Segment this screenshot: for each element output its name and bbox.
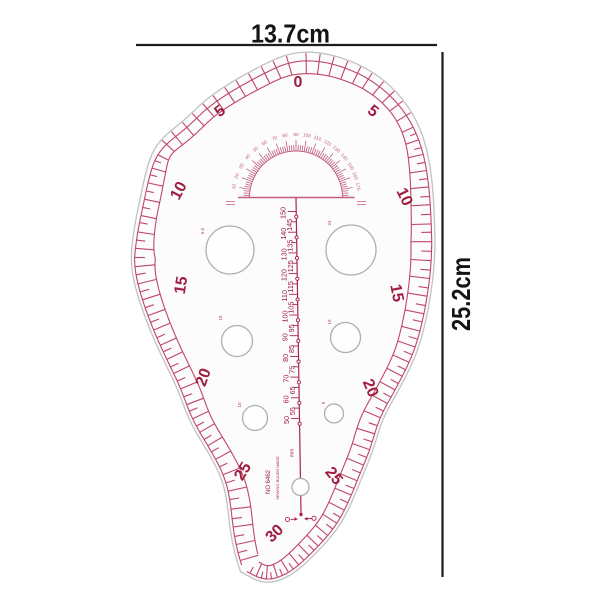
svg-text:90: 90 <box>281 333 290 341</box>
svg-text:140: 140 <box>279 228 288 240</box>
svg-text:16: 16 <box>218 315 223 321</box>
svg-text:65: 65 <box>288 386 297 394</box>
svg-text:130: 130 <box>279 248 288 260</box>
svg-text:75: 75 <box>288 366 297 374</box>
svg-text:10: 10 <box>237 402 242 408</box>
svg-text:100: 100 <box>280 311 289 323</box>
svg-text:SEWING RULER MADE: SEWING RULER MADE <box>275 456 280 500</box>
svg-text:50: 50 <box>282 416 291 424</box>
svg-text:13.7cm: 13.7cm <box>251 19 330 49</box>
svg-text:85: 85 <box>287 345 296 353</box>
svg-text:120: 120 <box>280 269 289 281</box>
svg-text:25.2cm: 25.2cm <box>446 257 476 331</box>
svg-text:60: 60 <box>282 395 291 403</box>
svg-text:90: 90 <box>293 132 299 138</box>
svg-text:80: 80 <box>281 354 290 362</box>
svg-text:95: 95 <box>287 324 296 332</box>
svg-text:0: 0 <box>294 74 303 91</box>
svg-text:55: 55 <box>288 407 297 415</box>
svg-text:5.5: 5.5 <box>200 227 205 234</box>
svg-text:70: 70 <box>281 375 290 383</box>
svg-text:mm: mm <box>290 449 296 457</box>
svg-text:19: 19 <box>327 319 332 325</box>
svg-text:NO 6462: NO 6462 <box>266 469 272 494</box>
svg-text:15: 15 <box>386 283 406 304</box>
svg-text:15: 15 <box>172 275 192 295</box>
svg-text:150: 150 <box>279 207 288 219</box>
svg-text:110: 110 <box>280 290 289 301</box>
svg-text:24: 24 <box>327 220 332 226</box>
